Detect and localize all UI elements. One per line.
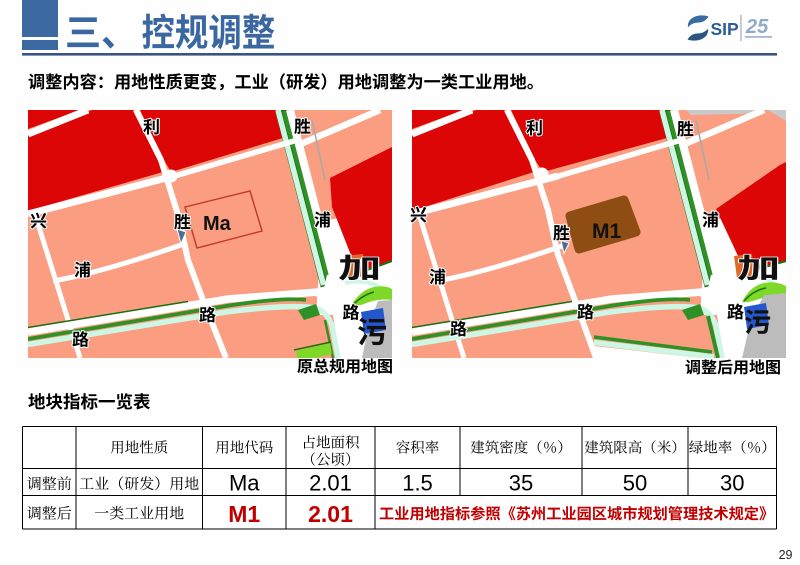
svg-text:Ma: Ma: [229, 471, 260, 496]
svg-text:29: 29: [779, 548, 793, 562]
svg-text:50: 50: [623, 471, 647, 496]
svg-text:2.01: 2.01: [308, 501, 353, 527]
svg-text:1.5: 1.5: [402, 471, 433, 496]
svg-text:M1: M1: [228, 501, 260, 527]
svg-text:M1: M1: [592, 220, 621, 243]
svg-text:25: 25: [745, 16, 769, 38]
svg-text:Ma: Ma: [203, 213, 232, 235]
svg-text:30: 30: [720, 471, 744, 496]
svg-text:2.01: 2.01: [309, 471, 352, 496]
svg-text:SIP: SIP: [711, 19, 740, 39]
svg-text:35: 35: [509, 471, 533, 496]
